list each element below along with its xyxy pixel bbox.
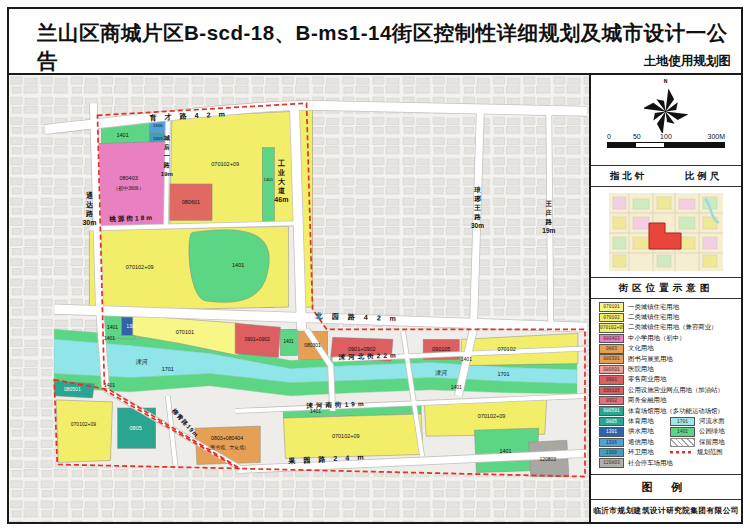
map-label: 1701 xyxy=(497,371,509,377)
legend-swatch: 120803 xyxy=(599,458,624,468)
map-panel: 育才路42m 通达路30m 城后一路19m 桃源街18m 工业大道46m 琅琊王… xyxy=(9,75,589,522)
legend-swatch: 1306 xyxy=(599,438,624,448)
legend-label: 供水用地 xyxy=(628,427,654,436)
legend-label: 社会停车场用地 xyxy=(628,459,673,468)
map-label: 1401 xyxy=(264,177,274,182)
legend-item: 120803社会停车场用地 xyxy=(599,458,741,468)
legend-item: 090105公用设施营业网点用地（加油站） xyxy=(599,385,741,395)
sidebar: N 0 50 100 300M xyxy=(589,75,741,522)
legend-swatch: 070102 xyxy=(599,313,624,323)
legend-item: 0803文化用地 xyxy=(599,344,741,354)
parcel xyxy=(189,230,269,303)
map-label: 涑河 xyxy=(435,370,447,376)
legend-label: 文化用地 xyxy=(628,344,654,353)
legend-label: 一类城镇住宅用地 xyxy=(628,303,679,312)
legend-item: 保留用地 xyxy=(670,437,741,447)
north-arrow-icon: N xyxy=(644,77,687,133)
legend-single-column: 070101一类城镇住宅用地070102二类城镇住宅用地070102+09二类城… xyxy=(599,302,741,416)
company-name: 临沂市规划建筑设计研究院集团有限公司 xyxy=(591,500,741,522)
legend-item: 1306通信用地 xyxy=(599,437,670,447)
legend-item: 规划范围 xyxy=(670,447,741,457)
map-label: 1701 xyxy=(162,366,174,372)
map-label: 0901+0902 xyxy=(348,346,376,352)
map-label: 080403 xyxy=(119,175,137,181)
map-label: 070102+09 xyxy=(211,161,239,167)
legend-item: 1309环卫用地 xyxy=(599,447,670,457)
map-label: 1401 xyxy=(104,382,115,388)
legend-swatch: 080301 xyxy=(599,354,624,364)
map-label: 0901+0902 xyxy=(245,336,270,342)
legend-swatch: 1401 xyxy=(670,427,695,437)
content-row: 育才路42m 通达路30m 城后一路19m 桃源街18m 工业大道46m 琅琊王… xyxy=(9,75,741,522)
legend-swatch: 0803 xyxy=(599,344,624,354)
boundary-swatch xyxy=(670,449,693,457)
scale-ticks: 0 50 100 300M xyxy=(607,133,725,142)
map-label: 1401 xyxy=(104,335,115,341)
land-use-map: 育才路42m 通达路30m 城后一路19m 桃源街18m 工业大道46m 琅琊王… xyxy=(9,75,589,522)
legend-item: 080601医院用地 xyxy=(599,364,741,374)
legend-label: 公园绿地 xyxy=(699,427,725,436)
legend-swatch: 070102+09 xyxy=(599,323,624,333)
scale-tick: 100 xyxy=(660,133,672,140)
legend-two-columns: 0805体育用地1301供水用地1306通信用地1309环卫用地 1701河流水… xyxy=(599,416,741,458)
legend-swatch: 080501 xyxy=(599,406,624,416)
legend-right-column: 1701河流水面1401公园绿地保留用地规划范围 xyxy=(670,416,741,458)
legend-swatch: 080403 xyxy=(599,334,624,344)
legend-label: 商务金融用地 xyxy=(628,396,666,405)
map-label: 1401 xyxy=(451,384,462,390)
legend-swatch: 1309 xyxy=(599,448,624,458)
legend-swatch: 090105 xyxy=(599,386,624,396)
legend-label: 医院用地 xyxy=(628,365,654,374)
location-minimap xyxy=(609,193,723,271)
map-label: 120803 xyxy=(539,456,556,462)
map-label: 1309 xyxy=(153,136,163,141)
legend-label: 公用设施营业网点用地（加油站） xyxy=(628,386,724,395)
map-label: 070102+09 xyxy=(71,421,96,427)
legend-label: 二类城镇住宅用地 xyxy=(628,313,679,322)
legend-swatch: 070101 xyxy=(599,302,624,312)
legend-label: 规划范围 xyxy=(697,448,723,457)
map-label: 1401 xyxy=(107,324,118,330)
scale-tick: 50 xyxy=(633,133,641,140)
map-label: 1401 xyxy=(310,408,321,414)
page-title: 兰山区商城片区B-scd-18、B-ms1-14街区控制性详细规划及城市设计一公… xyxy=(37,19,741,75)
map-label: 080301 xyxy=(304,342,321,348)
legend-swatch: 080601 xyxy=(599,365,624,375)
map-label: 1301 xyxy=(127,324,138,329)
map-label: 涑河 xyxy=(136,359,148,365)
legend-swatch: 1701 xyxy=(670,417,695,427)
legend-label: 零售商业用地 xyxy=(628,375,666,384)
map-label: 070102+09 xyxy=(478,413,506,419)
legend-item: 080403中小学用地（初中） xyxy=(599,333,741,343)
legend-last-row: 120803社会停车场用地 xyxy=(599,458,741,468)
legend-item: 1401公园绿地 xyxy=(670,427,741,437)
scale-caption: 比例尺 xyxy=(685,170,723,183)
svg-text:N: N xyxy=(664,78,668,84)
legend-swatch: 0901 xyxy=(599,375,624,385)
map-label: 1401 xyxy=(499,448,511,454)
legend-left-column: 0805体育用地1301供水用地1306通信用地1309环卫用地 xyxy=(599,416,670,458)
map-label: 1401 xyxy=(232,262,244,268)
legend-item: 080301图书与展览用地 xyxy=(599,354,741,364)
legend-title: 图 例 xyxy=(591,475,741,500)
map-label: 1401 xyxy=(461,356,472,362)
legend-label: 图书与展览用地 xyxy=(628,355,673,364)
legend: 070101一类城镇住宅用地070102二类城镇住宅用地070102+09二类城… xyxy=(591,299,741,475)
map-subtitle: 土地使用规划图 xyxy=(644,53,732,70)
legend-item: 070102+09二类城镇住宅用地（兼容商业） xyxy=(599,323,741,333)
scale-bar: 0 50 100 300M xyxy=(607,133,725,153)
map-label: 1401 xyxy=(283,339,294,344)
outer-frame: 兰山区商城片区B-scd-18、B-ms1-14街区控制性详细规划及城市设计一公… xyxy=(7,7,743,524)
legend-label: 通信用地 xyxy=(628,438,654,447)
map-label: 080601 xyxy=(182,199,200,205)
legend-label: 体育用地 xyxy=(628,417,654,426)
map-label: 1401 xyxy=(116,132,128,138)
legend-label: 中小学用地（初中） xyxy=(628,334,686,343)
compass-scale-captions: 指北针 比例尺 xyxy=(591,166,741,187)
legend-item: 0805体育用地 xyxy=(599,416,670,426)
map-label: 070102+09 xyxy=(332,433,360,439)
legend-swatch: 1301 xyxy=(599,427,624,437)
legend-item: 1301供水用地 xyxy=(599,427,670,437)
location-map-box xyxy=(591,187,741,278)
location-caption: 街区位置示意图 xyxy=(591,278,741,299)
legend-item: 1701河流水面 xyxy=(670,416,741,426)
legend-label: 体育场馆用地（多功能运动场馆） xyxy=(628,407,724,416)
legend-item: 080501体育场馆用地（多功能运动场馆） xyxy=(599,406,741,416)
map-label: 070102+09 xyxy=(126,264,154,270)
legend-swatch: 0805 xyxy=(599,417,624,427)
legend-item: 0901零售商业用地 xyxy=(599,375,741,385)
planning-announcement-page: 兰山区商城片区B-scd-18、B-ms1-14街区控制性详细规划及城市设计一公… xyxy=(0,0,750,531)
map-label: 070101 xyxy=(176,329,194,335)
map-label: 1306 xyxy=(153,123,163,128)
scale-tick: 300M xyxy=(707,133,725,140)
map-label: 0803+080404 xyxy=(211,435,243,441)
legend-item: 070101一类城镇住宅用地 xyxy=(599,302,741,312)
map-label: （图书馆、文化馆） xyxy=(205,444,248,451)
legend-label: 河流水面 xyxy=(699,417,725,426)
map-label: 090105 xyxy=(432,346,450,352)
map-label: 0805 xyxy=(130,425,142,431)
legend-label: 二类城镇住宅用地（兼容商业） xyxy=(628,323,717,332)
compass-caption: 指北针 xyxy=(610,170,648,183)
legend-label: 保留用地 xyxy=(699,438,725,447)
header: 兰山区商城片区B-scd-18、B-ms1-14街区控制性详细规划及城市设计一公… xyxy=(9,9,741,75)
legend-item: 0902商务金融用地 xyxy=(599,396,741,406)
scale-tick: 0 xyxy=(607,133,611,140)
scale-bar-segments xyxy=(607,142,725,148)
legend-label: 环卫用地 xyxy=(628,448,654,457)
map-label: 070102 xyxy=(497,346,515,352)
hatch-swatch xyxy=(670,438,695,448)
legend-swatch: 0902 xyxy=(599,396,624,406)
compass-scale-box: N 0 50 100 300M xyxy=(591,75,741,166)
parcel xyxy=(56,400,112,463)
map-label: （初中36班） xyxy=(113,185,144,191)
map-label: 080501 xyxy=(64,386,81,392)
legend-item: 070102二类城镇住宅用地 xyxy=(599,312,741,322)
